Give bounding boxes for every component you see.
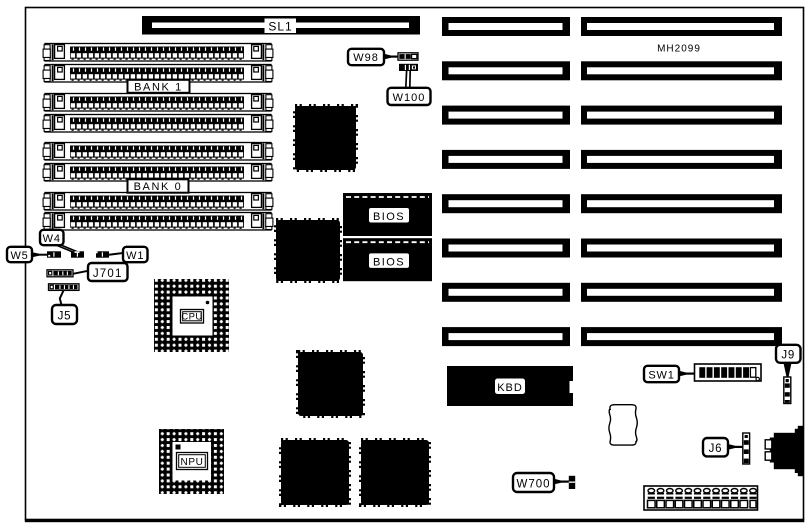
svg-text:W5: W5 xyxy=(10,250,28,262)
svg-text:BANK 0: BANK 0 xyxy=(134,181,183,193)
svg-text:KBD: KBD xyxy=(497,382,523,394)
svg-text:W1: W1 xyxy=(126,250,144,262)
svg-text:J6: J6 xyxy=(709,443,723,455)
svg-text:BIOS: BIOS xyxy=(373,256,405,268)
svg-text:W700: W700 xyxy=(516,478,550,490)
svg-text:SW1: SW1 xyxy=(648,369,674,381)
svg-text:BANK 1: BANK 1 xyxy=(134,81,183,93)
svg-text:CPU: CPU xyxy=(181,312,202,323)
svg-text:MH2099: MH2099 xyxy=(657,44,701,55)
svg-text:J701: J701 xyxy=(93,268,123,280)
svg-text:W100: W100 xyxy=(393,92,426,104)
svg-text:W98: W98 xyxy=(353,52,379,64)
svg-text:J9: J9 xyxy=(781,350,795,362)
svg-text:W4: W4 xyxy=(43,233,61,245)
svg-text:J5: J5 xyxy=(58,311,72,323)
svg-text:NPU: NPU xyxy=(181,457,204,468)
svg-text:BIOS: BIOS xyxy=(373,211,405,223)
svg-text:SL1: SL1 xyxy=(268,20,292,34)
